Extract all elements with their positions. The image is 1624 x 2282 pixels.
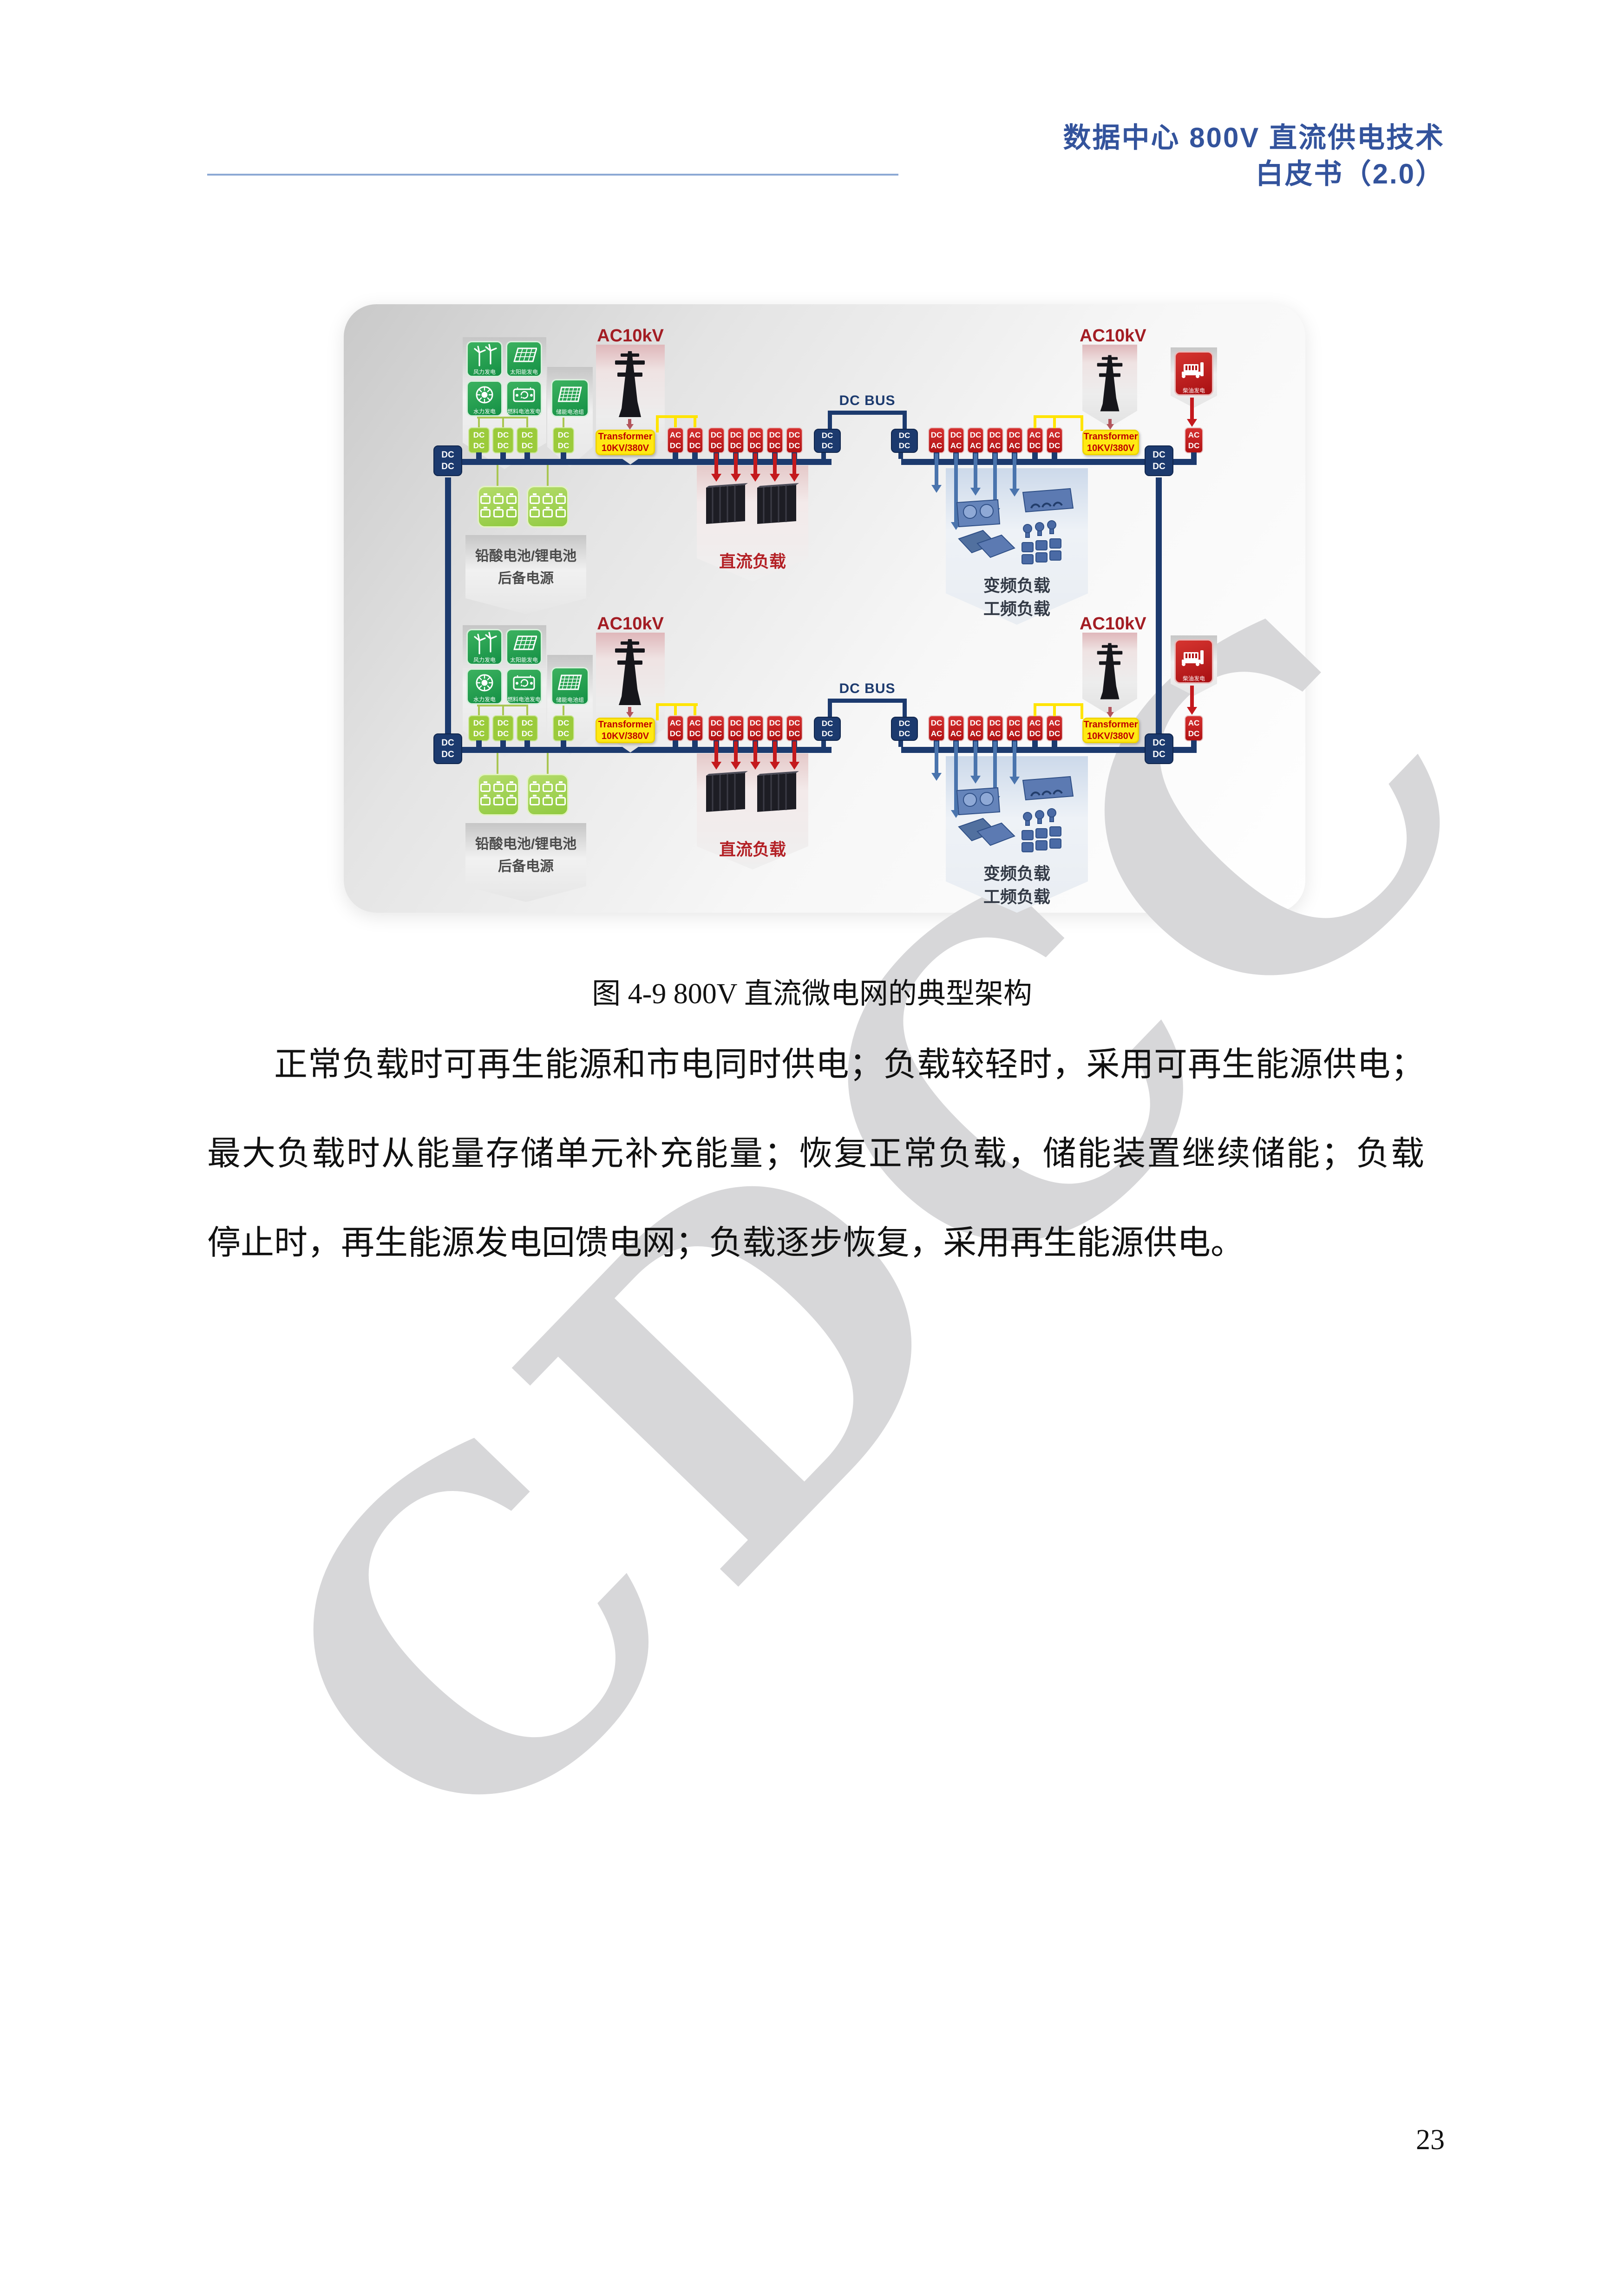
left-dc-interconnect-line [445,477,451,752]
body-line2: 最大负载时从能量存储单元补充能量；恢复正常负载，储能装置继续储能；负载 [207,1109,1424,1198]
header-title-line2: 白皮书（2.0） [1063,156,1445,192]
body-line3: 停止时，再生能源发电回馈电网；负载逐步恢复，采用再生能源供电。 [207,1198,1424,1288]
body-paragraph: 正常负载时可再生能源和市电同时供电；负载较轻时，采用可再生能源供电； 最大负载时… [207,1020,1424,1288]
right-dc-interconnect-line [1156,477,1162,752]
document-page: { "header": { "line1": "数据中心 800V 直流供电技术… [0,0,1624,2282]
header-rule [207,174,898,176]
page-header: 数据中心 800V 直流供电技术 白皮书（2.0） [1063,120,1445,192]
header-title-line1: 数据中心 800V 直流供电技术 [1063,120,1445,156]
body-line1: 正常负载时可再生能源和市电同时供电；负载较轻时，采用可再生能源供电； [207,1020,1424,1109]
page-number: 23 [1416,2124,1445,2157]
figure-caption: 图 4-9 800V 直流微电网的典型架构 [0,970,1624,1012]
